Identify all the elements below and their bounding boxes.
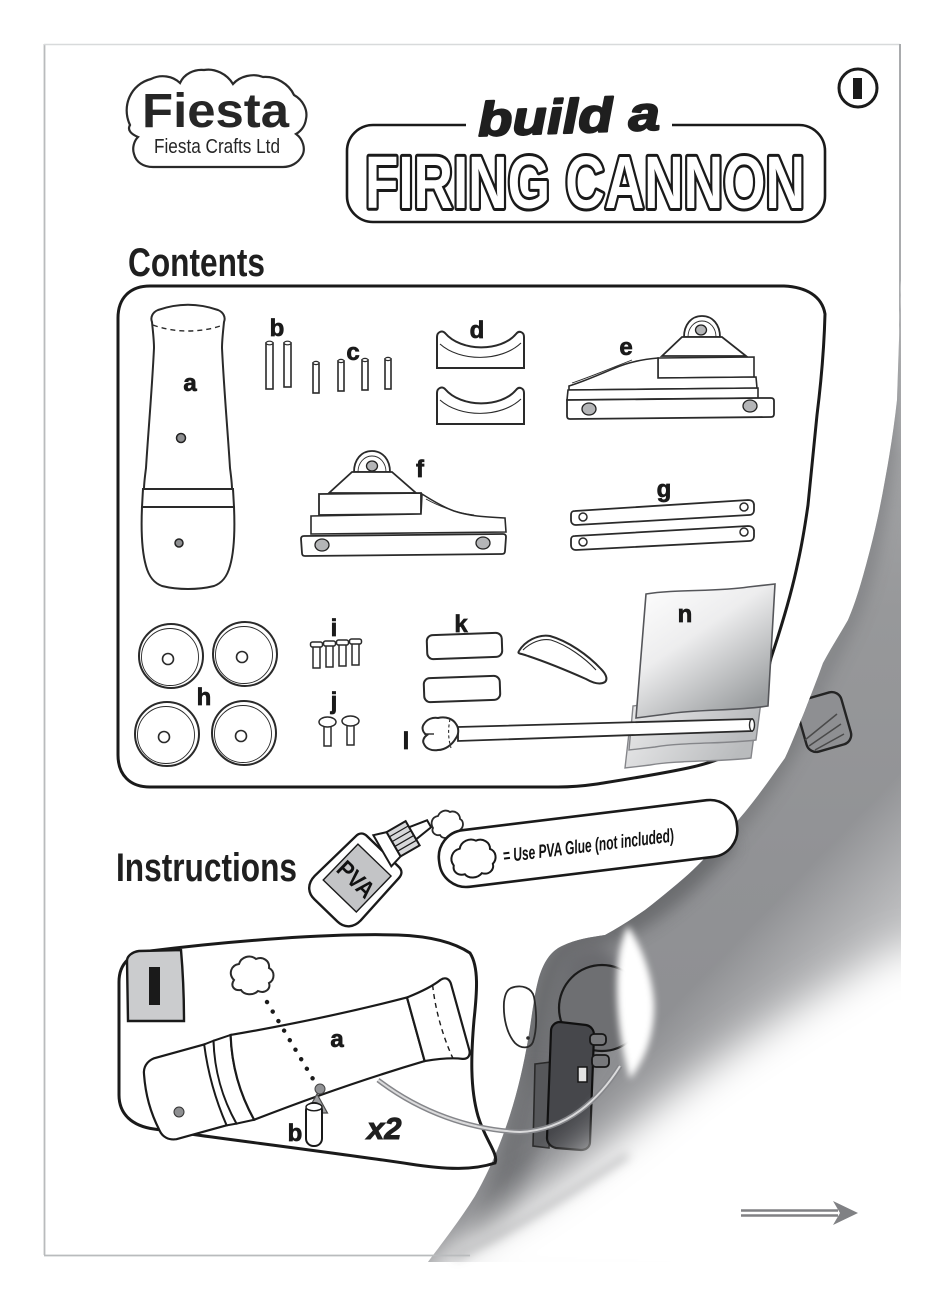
svg-text:i: i [331, 615, 338, 642]
svg-text:f: f [416, 456, 425, 483]
svg-text:Fiesta: Fiesta [142, 85, 289, 138]
svg-text:n: n [678, 601, 693, 628]
svg-text:b: b [270, 315, 285, 342]
svg-text:l: l [403, 728, 410, 755]
svg-text:g: g [657, 476, 672, 503]
svg-text:build a: build a [477, 88, 661, 147]
svg-text:x2: x2 [365, 1111, 401, 1146]
svg-text:b: b [288, 1120, 303, 1147]
svg-text:j: j [330, 688, 338, 715]
svg-text:Fiesta Crafts Ltd: Fiesta Crafts Ltd [154, 136, 280, 158]
svg-text:d: d [470, 317, 485, 344]
svg-text:a: a [330, 1026, 344, 1053]
svg-text:h: h [197, 684, 212, 711]
svg-text:c: c [346, 339, 359, 366]
svg-text:a: a [183, 370, 197, 397]
svg-text:e: e [619, 334, 632, 361]
svg-text:Contents: Contents [128, 241, 265, 285]
svg-text:Instructions: Instructions [116, 846, 297, 890]
svg-text:FIRING CANNON: FIRING CANNON [365, 141, 805, 224]
